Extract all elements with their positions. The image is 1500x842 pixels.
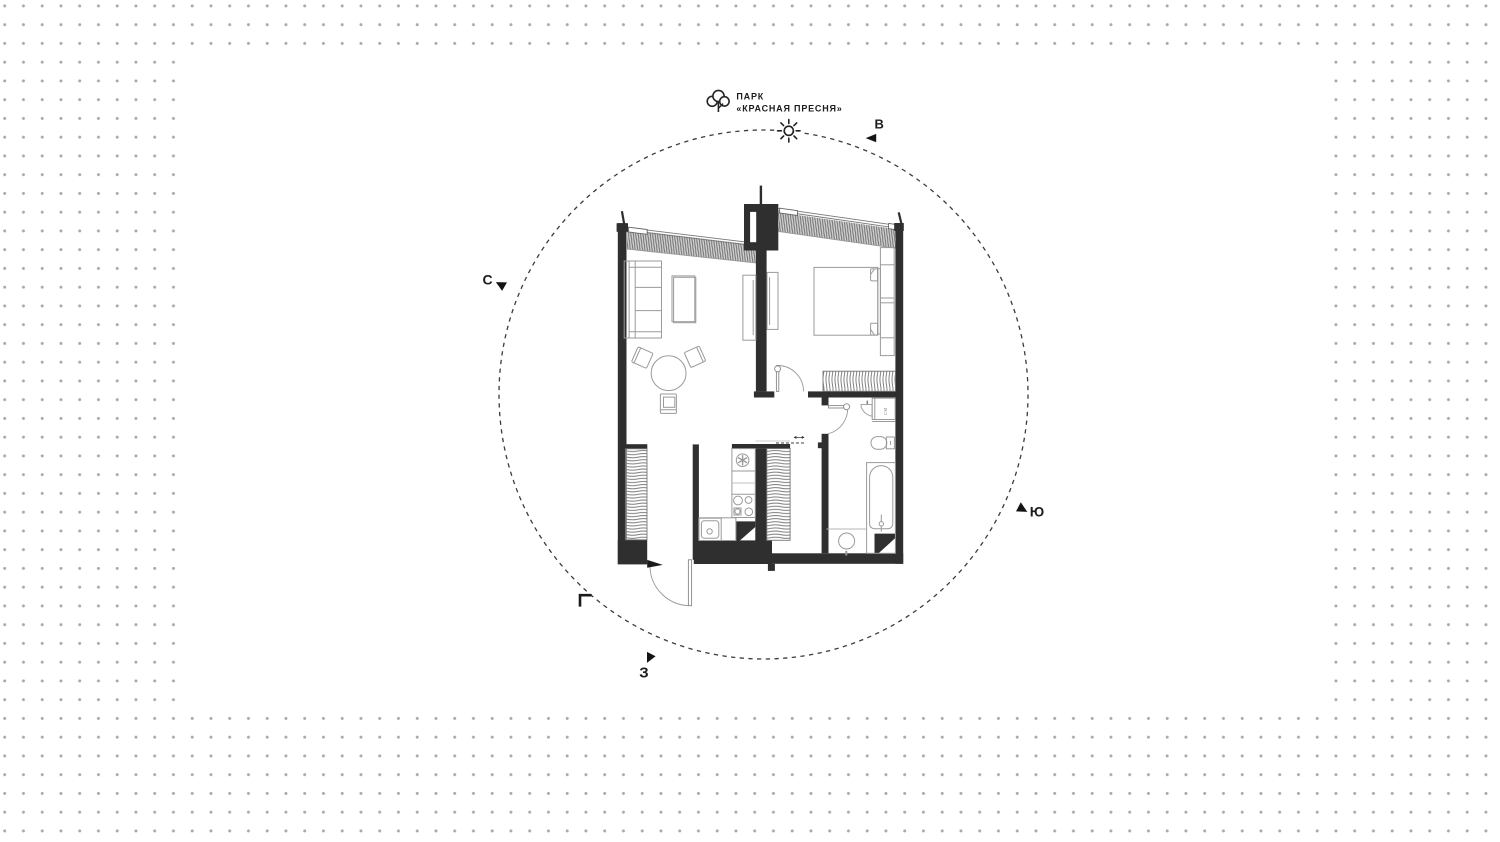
svg-text:СМ: СМ	[883, 408, 888, 415]
svg-text:З: З	[639, 664, 648, 681]
svg-text:В: В	[875, 116, 884, 131]
svg-text:С: С	[483, 272, 493, 288]
svg-text:«КРАСНАЯ ПРЕСНЯ»: «КРАСНАЯ ПРЕСНЯ»	[736, 103, 842, 113]
svg-text:Ю: Ю	[1030, 504, 1044, 520]
svg-text:ПАРК: ПАРК	[736, 92, 764, 102]
